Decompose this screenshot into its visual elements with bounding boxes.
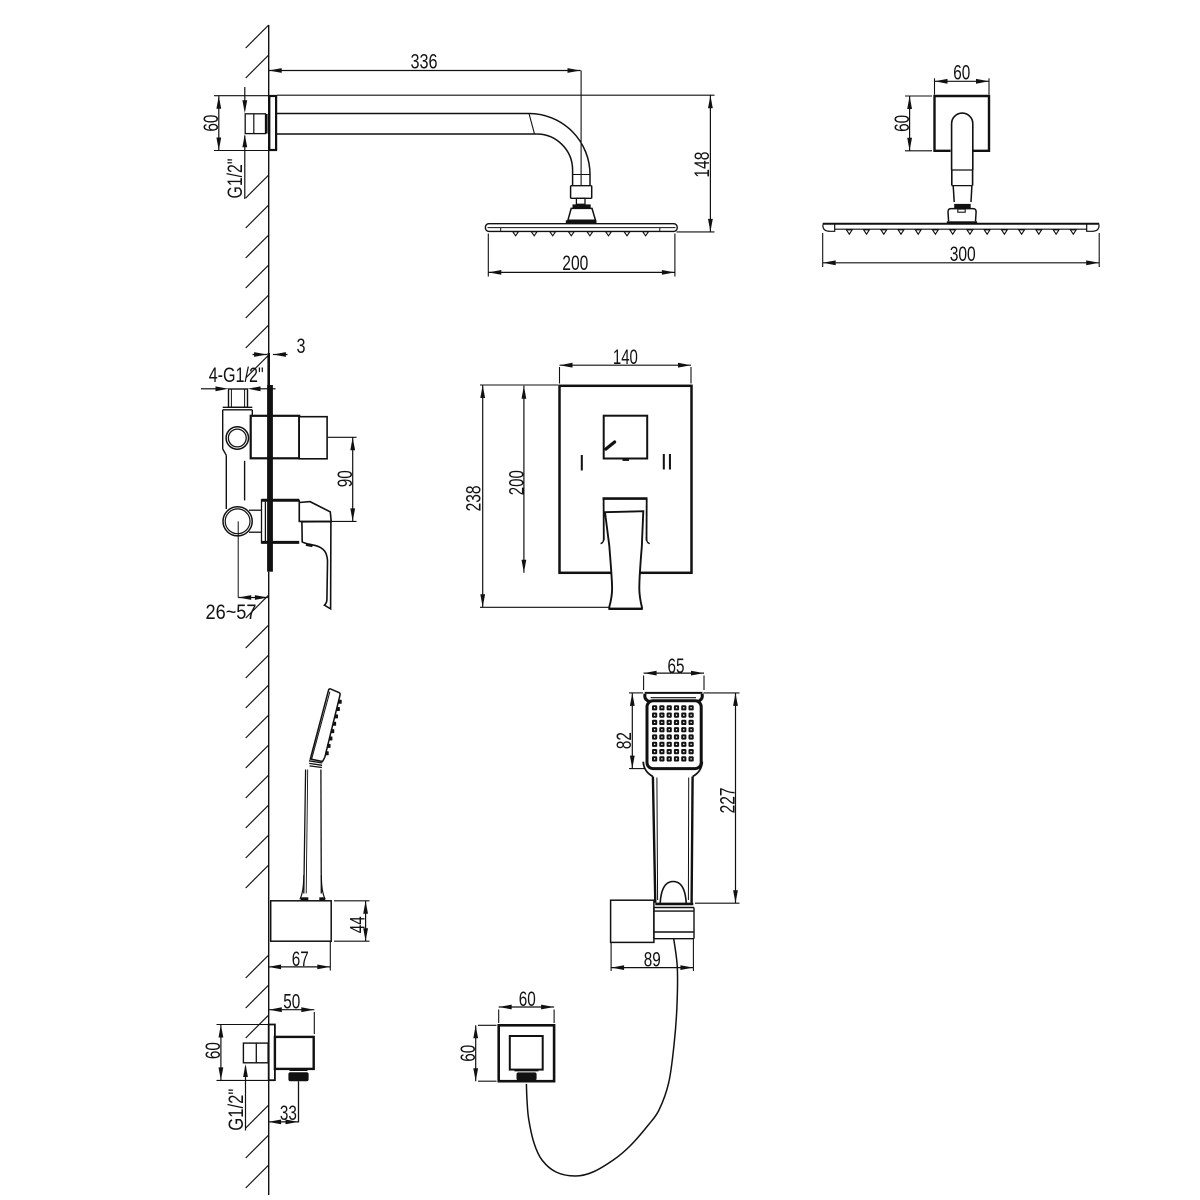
svg-text:II: II [661,450,673,475]
svg-text:26~57: 26~57 [206,601,257,624]
svg-text:200: 200 [562,252,588,275]
svg-text:G1/2": G1/2" [225,1089,248,1131]
svg-text:G1/2": G1/2" [224,158,247,198]
svg-text:50: 50 [283,991,300,1014]
svg-text:44: 44 [347,916,370,933]
svg-text:336: 336 [411,50,438,73]
svg-text:60: 60 [953,61,970,84]
svg-text:I: I [579,450,585,475]
svg-text:60: 60 [200,115,223,132]
svg-text:60: 60 [891,115,914,132]
svg-text:65: 65 [668,655,685,678]
svg-text:140: 140 [613,346,638,369]
svg-text:60: 60 [457,1045,480,1062]
svg-text:67: 67 [292,948,309,971]
svg-text:148: 148 [691,152,714,178]
svg-text:3: 3 [297,335,306,358]
svg-text:300: 300 [950,243,976,266]
svg-text:33: 33 [280,1102,297,1125]
svg-text:60: 60 [519,988,536,1011]
svg-text:60: 60 [202,1042,225,1059]
svg-text:90: 90 [334,470,357,487]
svg-text:89: 89 [644,948,661,971]
svg-text:4-G1/2": 4-G1/2" [209,364,264,387]
svg-text:238: 238 [463,485,486,511]
svg-text:227: 227 [716,787,739,813]
svg-text:82: 82 [613,732,636,749]
svg-text:200: 200 [505,470,528,495]
